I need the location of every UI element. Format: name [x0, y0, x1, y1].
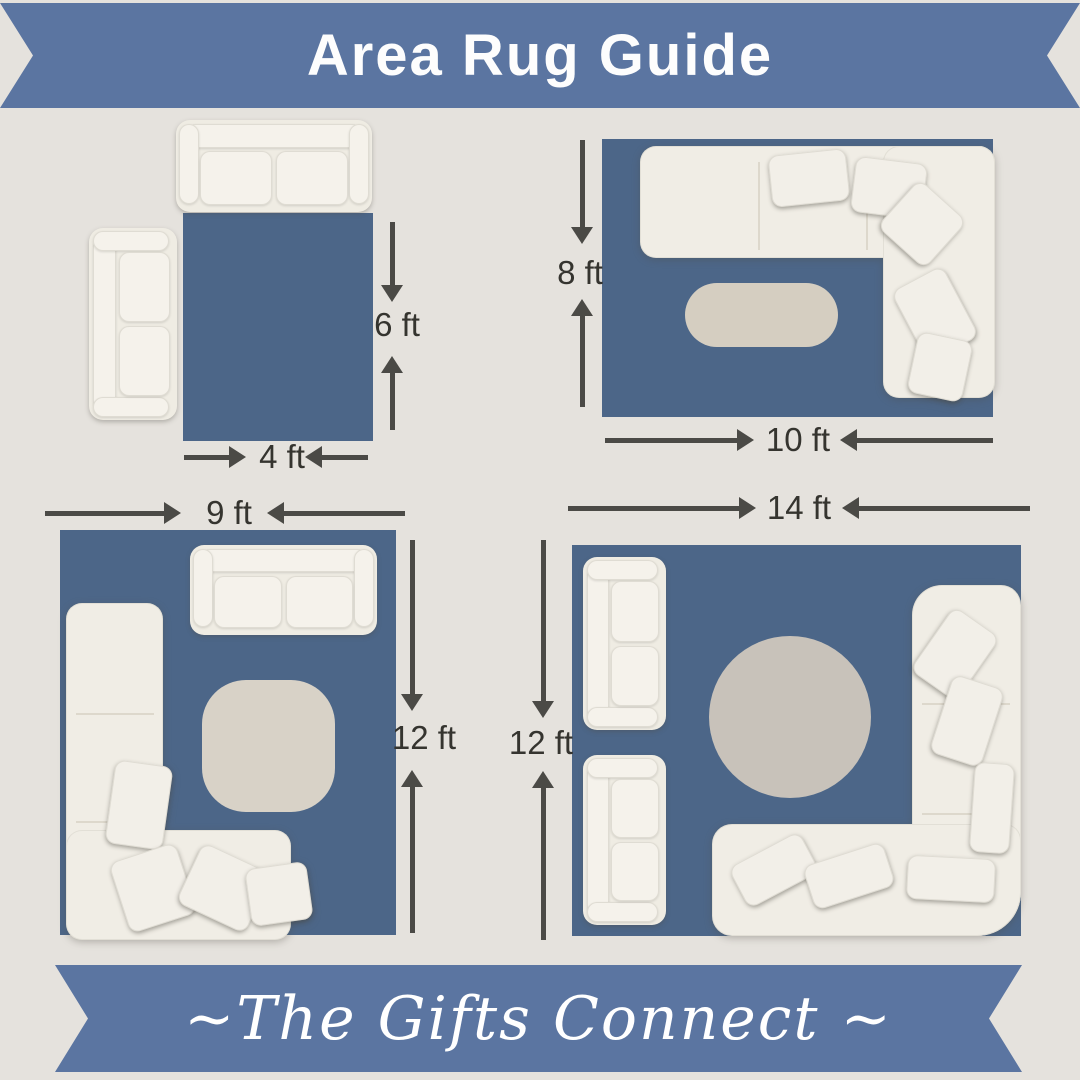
width-arrow-shaft [605, 438, 737, 443]
arrow-right-icon [737, 429, 754, 451]
height-arrow-shaft [390, 373, 395, 430]
sofa-seat [119, 326, 170, 396]
sofa-seat [611, 779, 659, 838]
sofa-arm [587, 560, 658, 580]
arrow-left-icon [267, 502, 284, 524]
height-label: 12 ft [509, 724, 573, 762]
sectional-sofa [712, 585, 1021, 936]
sofa-arm [179, 124, 199, 204]
area-rug-guide-poster: Area Rug Guide 6 ft 4 ft [0, 0, 1080, 1080]
oval-coffee-table [685, 283, 838, 347]
height-label: 12 ft [392, 719, 456, 757]
sofa-arm [93, 397, 169, 417]
height-arrow-shaft [410, 787, 415, 933]
arrow-down-icon [381, 285, 403, 302]
arrow-down-icon [532, 701, 554, 718]
sofa-backrest [186, 124, 362, 148]
cushion-seam [758, 162, 760, 250]
arrow-left-icon [840, 429, 857, 451]
sofa-backrest [587, 765, 609, 915]
width-arrow-shaft [859, 506, 1030, 511]
sofa-seat [276, 151, 348, 205]
bottom-banner-ribbon: ~The Gifts Connect ~ [55, 965, 1022, 1072]
sofa-arm [587, 902, 658, 922]
width-label: 9 ft [206, 494, 252, 532]
width-label: 10 ft [766, 421, 830, 459]
pillow [104, 759, 173, 850]
brand-name: ~The Gifts Connect ~ [184, 984, 893, 1054]
sectional-sofa [640, 146, 997, 402]
page-title: Area Rug Guide [307, 22, 773, 89]
width-arrow-shaft [568, 506, 739, 511]
pillow [244, 861, 313, 927]
sofa-backrest [587, 567, 609, 720]
loveseat-lower-left [583, 755, 666, 925]
width-arrow-shaft [45, 511, 164, 516]
sofa-seat [286, 576, 354, 628]
height-arrow-shaft [541, 788, 546, 940]
arrow-right-icon [164, 502, 181, 524]
arrow-down-icon [401, 694, 423, 711]
width-arrow-shaft [322, 455, 368, 460]
sofa-seat [200, 151, 272, 205]
sofa-seat [611, 581, 659, 642]
square-coffee-table [202, 680, 335, 812]
arrow-left-icon [842, 497, 859, 519]
height-arrow-shaft [580, 316, 585, 407]
pillow [906, 855, 996, 904]
pillow [969, 762, 1015, 855]
width-arrow-shaft [857, 438, 993, 443]
height-label: 8 ft [557, 254, 603, 292]
arrow-right-icon [229, 446, 246, 468]
width-arrow-shaft [184, 455, 229, 460]
pillow [767, 148, 850, 208]
sofa-backrest [200, 549, 367, 572]
arrow-left-icon [305, 446, 322, 468]
sofa-seat [611, 842, 659, 901]
width-label: 14 ft [767, 489, 831, 527]
height-arrow-shaft [390, 222, 395, 285]
sofa-arm [349, 124, 369, 204]
arrow-down-icon [571, 227, 593, 244]
width-label: 4 ft [259, 438, 305, 476]
loveseat-left [89, 228, 177, 420]
arrow-up-icon [532, 771, 554, 788]
arrow-up-icon [571, 299, 593, 316]
loveseat-top [176, 120, 372, 212]
width-arrow-shaft [284, 511, 405, 516]
arrow-right-icon [739, 497, 756, 519]
sofa-arm [93, 231, 169, 251]
rug-4x6 [183, 213, 373, 441]
sofa-backrest [93, 238, 116, 410]
height-arrow-shaft [580, 140, 585, 227]
cushion-seam [76, 713, 154, 715]
arrow-up-icon [401, 770, 423, 787]
loveseat-upper-left [583, 557, 666, 730]
sofa-seat [119, 252, 170, 322]
height-label: 6 ft [374, 306, 420, 344]
height-arrow-shaft [410, 540, 415, 694]
height-arrow-shaft [541, 540, 546, 701]
sofa-arm [587, 758, 658, 778]
sofa-arm [354, 549, 374, 627]
sofa-arm [587, 707, 658, 727]
top-banner-ribbon: Area Rug Guide [0, 3, 1080, 108]
arrow-up-icon [381, 356, 403, 373]
sofa-seat [611, 646, 659, 707]
